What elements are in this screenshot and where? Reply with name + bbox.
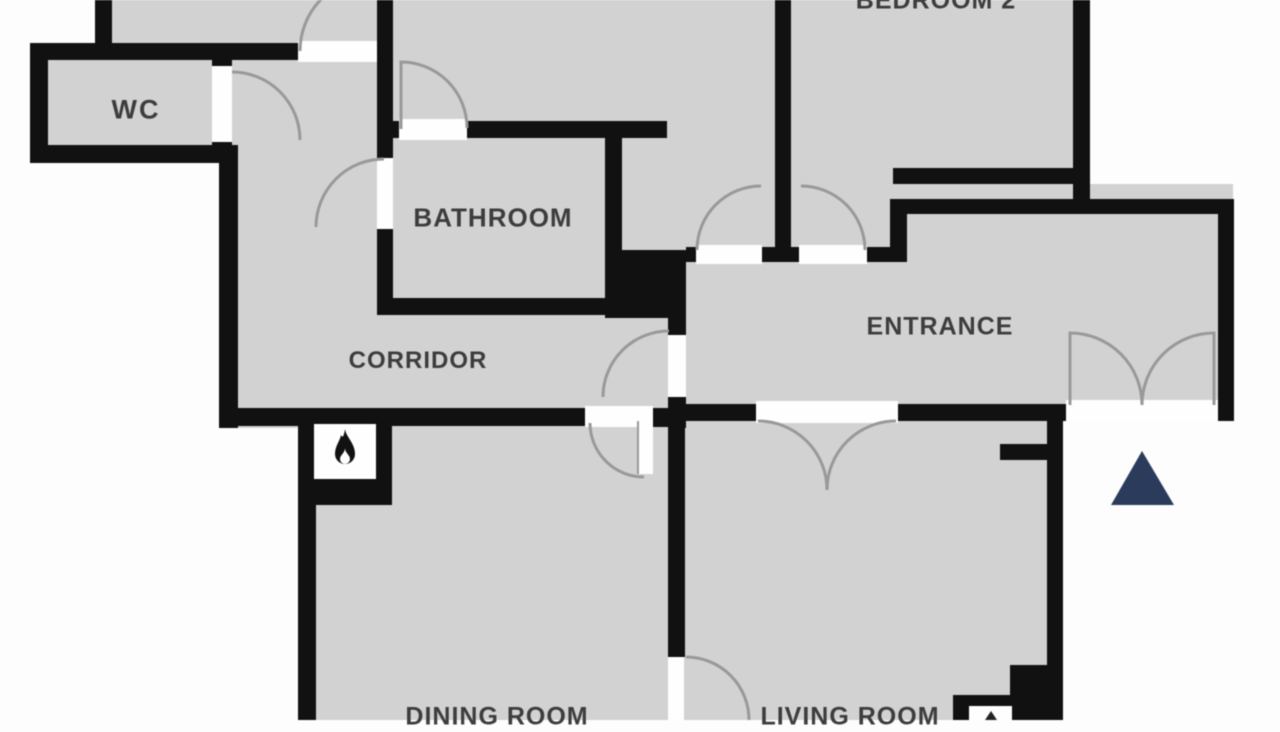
- door-swing-arc: [758, 421, 827, 490]
- door-arcs-layer: [0, 0, 1280, 720]
- door-swing-arc: [300, 0, 374, 51]
- door-swing-arc: [316, 159, 384, 227]
- door-swing-arc: [401, 62, 467, 129]
- room-label-bedroom2: BEDROOM 2: [856, 0, 1016, 16]
- flame-icon: [326, 428, 364, 474]
- floor-plan: WC BATHROOM CORRIDOR ENTRANCE BEDROOM 2 …: [0, 0, 1280, 720]
- north-arrow-triangle: [1111, 451, 1174, 505]
- door-swing-arc: [1142, 333, 1214, 405]
- room-label-dining: DINING ROOM: [405, 703, 588, 732]
- door-swing-arc: [801, 186, 865, 250]
- room-label-living: LIVING ROOM: [760, 703, 939, 732]
- door-swing-arc: [1070, 333, 1142, 405]
- door-swing-arc: [697, 186, 761, 250]
- door-swing-arc: [686, 657, 749, 720]
- door-swing-arc: [232, 72, 300, 140]
- room-label-wc: WC: [112, 95, 161, 126]
- room-label-bathroom: BATHROOM: [413, 203, 572, 234]
- room-label-entrance: ENTRANCE: [867, 313, 1014, 342]
- door-swing-arc: [603, 331, 669, 397]
- door-swing-arc: [827, 421, 896, 490]
- room-label-corridor: CORRIDOR: [349, 347, 488, 375]
- door-swing-arc: [590, 423, 644, 477]
- utility-box-icon: [981, 711, 1001, 720]
